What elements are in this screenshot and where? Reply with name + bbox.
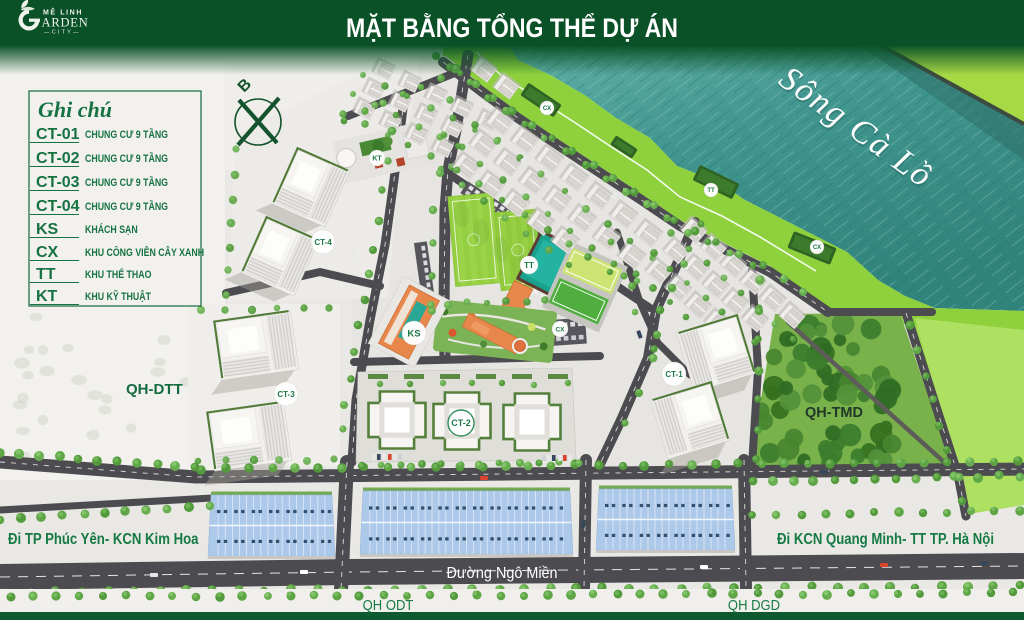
svg-text:Đi TP Phúc Yên- KCN Kim Hoa: Đi TP Phúc Yên- KCN Kim Hoa bbox=[8, 531, 199, 548]
svg-text:QH DGD: QH DGD bbox=[728, 596, 780, 613]
svg-text:Đường Ngô Miền: Đường Ngô Miền bbox=[446, 564, 557, 582]
svg-text:CT-3: CT-3 bbox=[277, 390, 295, 399]
svg-text:CX: CX bbox=[555, 326, 565, 333]
svg-text:CT-2: CT-2 bbox=[451, 418, 471, 428]
svg-text:CT-4: CT-4 bbox=[314, 238, 332, 247]
svg-text:QH ODT: QH ODT bbox=[363, 596, 414, 613]
svg-text:Đi KCN Quang Minh- TT TP. Hà N: Đi KCN Quang Minh- TT TP. Hà Nội bbox=[777, 531, 994, 548]
svg-text:KT: KT bbox=[372, 156, 382, 163]
svg-text:CHUNG CƯ 9 TẦNG: CHUNG CƯ 9 TẦNG bbox=[85, 129, 168, 141]
svg-text:KS: KS bbox=[407, 328, 420, 339]
svg-text:KT: KT bbox=[36, 288, 58, 305]
svg-text:KS: KS bbox=[36, 221, 59, 238]
svg-text:CT-01: CT-01 bbox=[36, 126, 80, 143]
svg-text:QH-DTT: QH-DTT bbox=[126, 381, 183, 398]
svg-text:TT: TT bbox=[524, 261, 534, 270]
svg-text:TT: TT bbox=[36, 266, 56, 283]
svg-text:CT-03: CT-03 bbox=[36, 174, 80, 191]
svg-text:KHU CÔNG VIÊN CÂY XANH: KHU CÔNG VIÊN CÂY XANH bbox=[85, 246, 204, 259]
svg-text:KHU KỸ THUẬT: KHU KỸ THUẬT bbox=[85, 290, 151, 303]
svg-text:CHUNG CƯ 9 TẦNG: CHUNG CƯ 9 TẦNG bbox=[85, 153, 168, 165]
svg-text:MẶT BẰNG TỔNG THỂ DỰ ÁN: MẶT BẰNG TỔNG THỂ DỰ ÁN bbox=[346, 11, 678, 43]
svg-text:KHÁCH SẠN: KHÁCH SẠN bbox=[85, 224, 138, 236]
svg-text:KHU THỂ THAO: KHU THỂ THAO bbox=[85, 268, 152, 281]
svg-text:ARDEN: ARDEN bbox=[42, 16, 89, 30]
svg-text:CT-1: CT-1 bbox=[665, 370, 683, 379]
svg-text:QH-TMD: QH-TMD bbox=[805, 405, 863, 421]
svg-text:CX: CX bbox=[36, 244, 59, 261]
svg-text:CHUNG CƯ 9 TẦNG: CHUNG CƯ 9 TẦNG bbox=[85, 201, 168, 213]
svg-text:CX: CX bbox=[813, 245, 821, 251]
svg-text:CHUNG CƯ 9 TẦNG: CHUNG CƯ 9 TẦNG bbox=[85, 177, 168, 189]
svg-text:Ghi chú: Ghi chú bbox=[38, 97, 112, 122]
svg-text:CX: CX bbox=[543, 106, 551, 112]
svg-text:—CITY—: —CITY— bbox=[44, 30, 81, 36]
svg-text:TT: TT bbox=[707, 188, 715, 194]
svg-text:CT-04: CT-04 bbox=[36, 198, 80, 215]
svg-text:CT-02: CT-02 bbox=[36, 150, 80, 167]
